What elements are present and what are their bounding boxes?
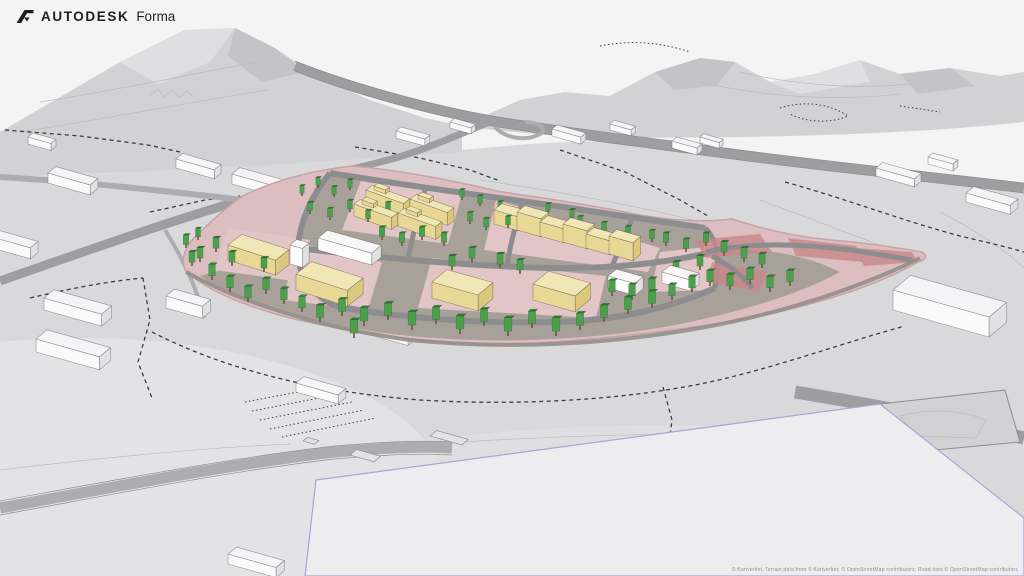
map-attribution: © Kartverket, Terrain data from © Kartve… <box>732 567 1018 573</box>
brand-name: AUTODESK <box>41 9 129 24</box>
autodesk-logo-icon <box>16 9 34 24</box>
proposal-building-white[interactable] <box>290 240 309 268</box>
app-logo: AUTODESK Forma <box>16 9 175 24</box>
product-name: Forma <box>136 9 175 24</box>
forma-app-window: AUTODESK Forma © Kartverket, Terrain dat… <box>0 0 1024 576</box>
3d-viewport[interactable] <box>0 0 1024 576</box>
